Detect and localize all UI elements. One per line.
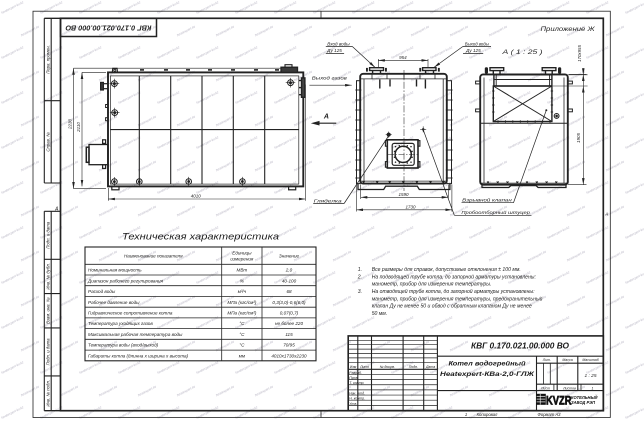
svg-text:Единицы: Единицы — [232, 250, 252, 255]
svg-text:2,0: 2,0 — [285, 268, 293, 273]
svg-text:МПа (кгс/см²): МПа (кгс/см²) — [227, 311, 256, 316]
svg-text:Выход воды: Выход воды — [465, 41, 490, 46]
svg-text:Температура воды (вход/выход): Температура воды (вход/выход) — [88, 343, 159, 348]
svg-text:№ докум.: № докум. — [380, 365, 395, 369]
svg-text:Лист: Лист — [540, 386, 550, 390]
svg-text:измерения: измерения — [230, 257, 254, 262]
svg-text:Подп. и дата: Подп. и дата — [45, 338, 50, 366]
svg-text:Рабочее давление воды: Рабочее давление воды — [88, 300, 140, 305]
svg-text:Копировал: Копировал — [477, 412, 498, 417]
svg-text:%: % — [240, 278, 244, 283]
svg-text:°С: °С — [239, 332, 245, 337]
svg-text:Перв. примен.: Перв. примен. — [45, 45, 50, 74]
svg-text:Справ. №: Справ. № — [45, 132, 50, 152]
svg-text:Техническая характеристика: Техническая характеристика — [122, 231, 279, 241]
svg-text:Подп. и дата: Подп. и дата — [45, 221, 50, 249]
svg-text:Разраб.: Разраб. — [349, 371, 362, 375]
svg-text:Лит.: Лит. — [542, 358, 551, 362]
svg-text:Пров.: Пров. — [349, 376, 358, 380]
svg-text:1 : 25: 1 : 25 — [584, 373, 596, 379]
svg-text:70/95: 70/95 — [283, 343, 295, 348]
svg-text:Листов: Листов — [562, 386, 576, 390]
svg-text:2230: 2230 — [67, 118, 72, 130]
svg-text:°С: °С — [239, 321, 245, 326]
svg-text:А: А — [604, 212, 608, 217]
svg-text:3.: 3. — [358, 289, 362, 295]
svg-text:Температура уходящих газов: Температура уходящих газов — [88, 321, 153, 326]
svg-text:50 мм.: 50 мм. — [372, 311, 387, 317]
svg-text:Heatexpert-КВа-2,0-ГЛЖ: Heatexpert-КВа-2,0-ГЛЖ — [440, 371, 535, 378]
svg-text:МВт: МВт — [237, 268, 248, 273]
svg-text:Все размеры для справок, допус: Все размеры для справок, допустимые откл… — [372, 267, 521, 273]
svg-text:Утв.: Утв. — [349, 402, 357, 406]
svg-text:Дата: Дата — [425, 365, 435, 369]
svg-text:1730: 1730 — [405, 204, 416, 209]
svg-text:манометр, прибор для измерения: манометр, прибор для измерения температу… — [372, 295, 543, 302]
svg-text:1905: 1905 — [576, 132, 581, 143]
svg-text:ЗАВОД РЭП: ЗАВОД РЭП — [571, 400, 596, 405]
svg-text:Взам. инв. №: Взам. инв. № — [45, 297, 50, 324]
svg-text:Инв. № дубл.: Инв. № дубл. — [45, 263, 50, 289]
svg-text:На отводящей трубе котла, до з: На отводящей трубе котла, до запорной ар… — [372, 288, 535, 295]
svg-text:Габариты котла (длинна х ширин: Габариты котла (длинна х ширина х высота… — [88, 353, 189, 358]
svg-text:КВГ 0.170.021.00.000 ВО: КВГ 0.170.021.00.000 ВО — [65, 24, 151, 33]
svg-text:МПа (кгс/см²): МПа (кгс/см²) — [227, 300, 256, 305]
svg-text:1.: 1. — [358, 267, 362, 273]
svg-text:Гидравлическое сопротивление к: Гидравлическое сопротивление котла — [88, 311, 173, 316]
svg-text:KVZR: KVZR — [546, 394, 572, 407]
svg-text:1: 1 — [592, 386, 594, 390]
svg-text:Ду 125: Ду 125 — [465, 48, 481, 53]
svg-text:115: 115 — [285, 332, 293, 337]
svg-text:Выход газов: Выход газов — [312, 75, 348, 81]
svg-text:Максимальная рабочая температу: Максимальная рабочая температура воды — [88, 332, 183, 337]
svg-text:На подводящей трубе котла, до: На подводящей трубе котла, до запорной а… — [372, 273, 537, 280]
svg-text:°С: °С — [239, 343, 245, 348]
svg-text:мм: мм — [239, 353, 246, 358]
svg-text:Значение: Значение — [279, 254, 300, 259]
svg-text:4010х1730х2230: 4010х1730х2230 — [271, 353, 307, 358]
svg-text:Номинальная мощность: Номинальная мощность — [88, 268, 142, 273]
svg-text:А: А — [323, 114, 329, 121]
svg-text:2.: 2. — [357, 274, 362, 280]
svg-text:не более 220: не более 220 — [275, 321, 303, 326]
svg-text:А: А — [54, 207, 59, 213]
svg-text:68: 68 — [286, 289, 292, 294]
svg-text:Изм: Изм — [350, 365, 357, 369]
svg-text:954: 954 — [399, 55, 407, 60]
svg-text:клапан Ду не менее 50 и обвод: клапан Ду не менее 50 и обвод с обратным… — [372, 304, 532, 310]
svg-text:0,3(3,0)-0,6(6,0): 0,3(3,0)-0,6(6,0) — [272, 300, 306, 305]
svg-text:Т. контр.: Т. контр. — [349, 381, 364, 385]
svg-text:Н. контр.: Н. контр. — [349, 397, 365, 401]
svg-text:2110: 2110 — [76, 122, 81, 133]
svg-text:КВГ 0.170.021.00.000 ВО: КВГ 0.170.021.00.000 ВО — [471, 342, 570, 351]
svg-text:Нач. отд.: Нач. отд. — [349, 392, 365, 396]
svg-text:1590: 1590 — [398, 192, 409, 197]
svg-text:Формат А3: Формат А3 — [538, 412, 562, 417]
svg-text:Приложение Ж: Приложение Ж — [541, 26, 596, 33]
svg-text:170х955: 170х955 — [577, 45, 582, 62]
svg-text:Гляделка: Гляделка — [314, 198, 343, 203]
svg-text:Лист: Лист — [359, 365, 369, 369]
svg-text:1: 1 — [465, 412, 467, 417]
svg-text:Пробоотборный штуцер: Пробоотборный штуцер — [461, 209, 530, 215]
svg-text:Масштаб: Масштаб — [582, 358, 599, 362]
svg-text:40-100: 40-100 — [282, 278, 297, 283]
svg-text:Наименование показателя: Наименование показателя — [124, 254, 183, 259]
svg-text:манометр, прибор для измерения: манометр, прибор для измерения температу… — [372, 282, 492, 288]
svg-text:Подп.: Подп. — [409, 365, 418, 369]
svg-text:Диапазон рабочего регулировани: Диапазон рабочего регулирования — [87, 278, 164, 283]
svg-text:Котел водогрейный: Котел водогрейный — [449, 359, 526, 367]
svg-text:Взрывной клапан: Взрывной клапан — [462, 197, 512, 203]
svg-text:А ( 1 : 25 ): А ( 1 : 25 ) — [501, 49, 542, 56]
svg-text:Ду 125: Ду 125 — [326, 48, 342, 53]
svg-text:Инв. № подл.: Инв. № подл. — [45, 380, 50, 407]
svg-text:Вход воды: Вход воды — [327, 41, 350, 46]
svg-text:Расход воды: Расход воды — [88, 289, 116, 294]
svg-text:м³/ч: м³/ч — [238, 289, 247, 294]
svg-text:4010: 4010 — [191, 194, 202, 199]
svg-text:Масса: Масса — [562, 358, 572, 362]
svg-text:0,07(0,7): 0,07(0,7) — [280, 311, 299, 316]
